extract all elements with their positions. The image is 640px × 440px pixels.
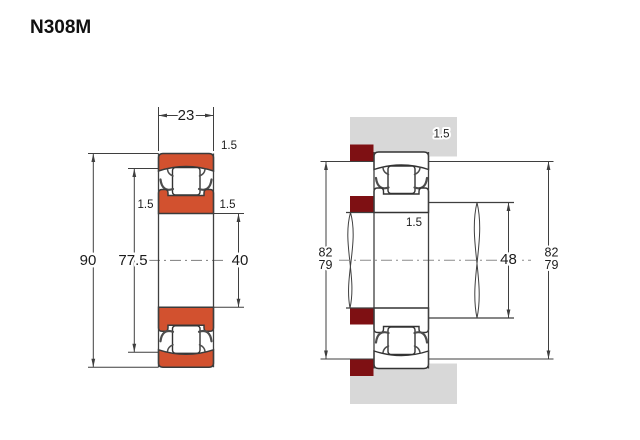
arrow-up-icon [132, 169, 136, 178]
cage-hook [161, 180, 174, 190]
shaft-fillet-label: 1.5 [406, 217, 422, 229]
arrow-right-icon [205, 114, 214, 118]
chamfer-label-left: 1.5 [138, 199, 154, 211]
arrow-down-icon [547, 351, 551, 360]
roller-top [173, 168, 201, 196]
bore-diameter-label: 40 [232, 252, 249, 269]
arrow-up-icon [507, 203, 511, 212]
shaft-abutment-spacer-top [350, 196, 374, 213]
cage-hook [199, 331, 212, 341]
part-number-title: N308M [30, 17, 91, 38]
cage-hook [199, 180, 212, 190]
arrow-up-icon [91, 154, 95, 163]
technical-drawing: 23 90 77.5 40 1.5 1.5 1.5 [0, 0, 640, 440]
shaft-abutment-spacer-bottom [350, 308, 374, 325]
chamfer-label-top: 1.5 [221, 140, 237, 152]
roller-bottom [173, 326, 201, 354]
right-view-mounted-arrangement: 1.5 1.5 82 79 48 82 79 [319, 117, 559, 404]
chamfer-label-right: 1.5 [220, 199, 236, 211]
cage-hook [376, 178, 389, 188]
drawing-canvas: 23 90 77.5 40 1.5 1.5 1.5 [0, 0, 640, 440]
roller-bottom [388, 327, 415, 355]
arrow-down-icon [132, 344, 136, 353]
housing-fillet-label: 1.5 [434, 129, 450, 141]
width-dim-label: 23 [178, 107, 195, 124]
housing-abutment-spacer-bottom [350, 359, 374, 377]
abutment-left-lower-label: 79 [319, 258, 333, 272]
arrow-up-icon [324, 162, 328, 171]
cage-hook [415, 332, 428, 342]
abutment-right-lower-label: 79 [545, 258, 559, 272]
left-view-cross-section: 23 90 77.5 40 1.5 1.5 1.5 [80, 107, 249, 367]
cage-hook [161, 331, 174, 341]
cage-hook [376, 332, 389, 342]
shoulder-diameter-label: 77.5 [118, 252, 147, 269]
arrow-down-icon [507, 310, 511, 319]
outer-diameter-label: 90 [80, 252, 97, 269]
arrow-down-icon [237, 299, 241, 308]
arrow-down-icon [324, 351, 328, 360]
housing-abutment-spacer-top [350, 145, 374, 163]
arrow-down-icon [91, 359, 95, 368]
shaft-shoulder-diameter-label: 48 [500, 251, 517, 268]
arrow-left-icon [159, 114, 168, 118]
arrow-up-icon [237, 214, 241, 223]
cage-hook [415, 178, 428, 188]
roller-top [388, 166, 415, 194]
arrow-up-icon [547, 162, 551, 171]
